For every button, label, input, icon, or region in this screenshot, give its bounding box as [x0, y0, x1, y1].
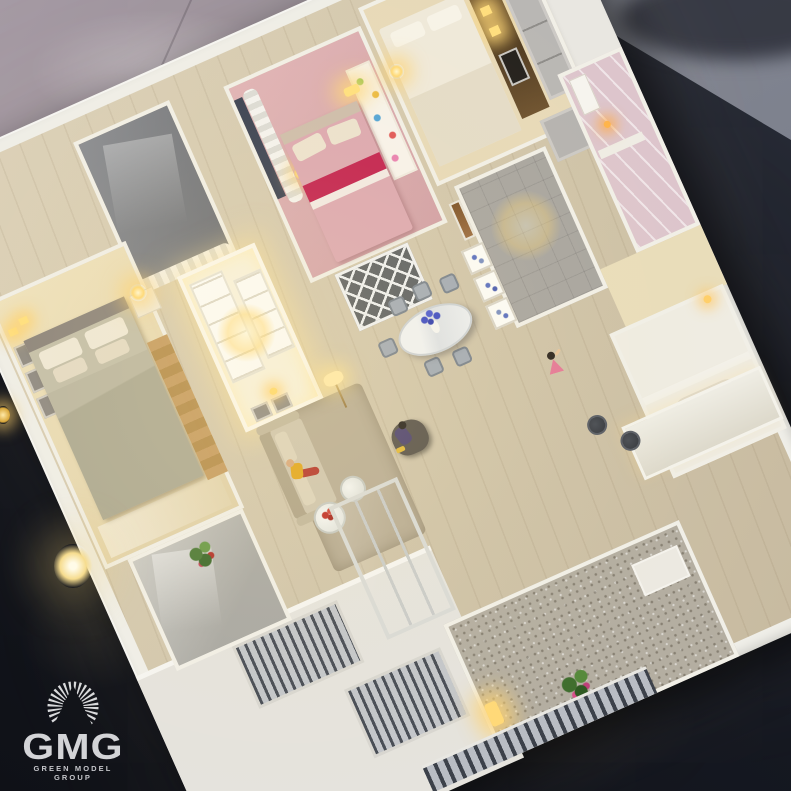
watermark: GMG GREEN MODEL GROUP	[0, 670, 150, 780]
lounge-reflection	[103, 134, 188, 235]
bedroom2-pillow-2	[426, 4, 464, 32]
watermark-title: GMG	[6, 726, 141, 764]
bedroom2-pillow-1	[389, 20, 427, 48]
table-glow-ornament	[54, 544, 92, 588]
wall-sconce-left-edge	[0, 406, 10, 424]
photo-scene: GMG GREEN MODEL GROUP	[0, 0, 791, 791]
watermark-subtitle: GREEN MODEL GROUP	[14, 764, 132, 774]
